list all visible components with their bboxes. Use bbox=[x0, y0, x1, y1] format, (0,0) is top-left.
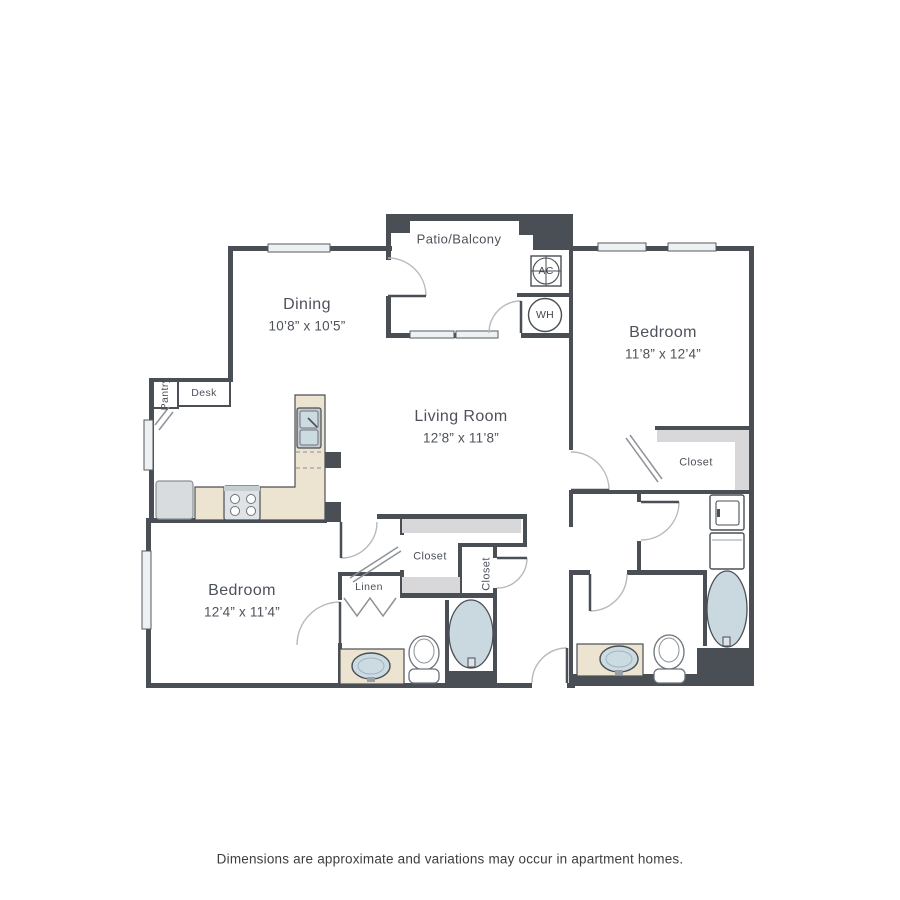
dining-dims: 10’8” x 10’5” bbox=[269, 319, 346, 333]
bath2-toilet bbox=[654, 635, 685, 683]
kitchen-sink bbox=[297, 408, 321, 448]
linen-label: Linen bbox=[355, 582, 383, 593]
living-room-dims: 12’8” x 11’8” bbox=[423, 431, 499, 445]
bedroom1-label: Bedroom bbox=[208, 583, 276, 599]
wh-label: WH bbox=[536, 310, 554, 321]
entry-door-arc bbox=[532, 648, 567, 683]
foyer-closet-label: Closet bbox=[482, 557, 493, 591]
bath1-door-arc bbox=[297, 602, 340, 645]
bedroom1-entry-door-arc bbox=[341, 522, 377, 558]
bath2-vanity bbox=[577, 644, 643, 676]
floor-plan-drawing bbox=[0, 0, 900, 900]
foyer-closet-door-arc bbox=[497, 558, 527, 588]
bedroom2-closet-bifold bbox=[626, 438, 658, 482]
stove bbox=[224, 486, 260, 520]
patio-door-arc bbox=[388, 258, 426, 296]
doors bbox=[155, 258, 679, 683]
desk-label: Desk bbox=[191, 388, 217, 399]
walkin-closet-label: Closet bbox=[413, 552, 447, 563]
wd-closet-door-arc bbox=[641, 502, 679, 540]
wh-closet-door-arc bbox=[489, 301, 521, 333]
washer-dryer bbox=[710, 495, 744, 569]
bath2-door-arc bbox=[590, 574, 627, 611]
disclaimer-text: Dimensions are approximate and variation… bbox=[217, 852, 684, 867]
bedroom2-door-arc bbox=[571, 452, 609, 490]
bedroom1-dims: 12’4” x 11’4” bbox=[204, 605, 280, 619]
refrigerator bbox=[156, 481, 193, 519]
bedroom2-label: Bedroom bbox=[629, 325, 697, 341]
bath1-toilet bbox=[409, 636, 439, 683]
bedroom2-closet-label: Closet bbox=[679, 458, 713, 469]
linen-bifold-doors bbox=[344, 598, 396, 616]
patio-balcony-label: Patio/Balcony bbox=[417, 233, 502, 246]
kitchen bbox=[156, 395, 325, 520]
pantry-label: Pantry bbox=[160, 378, 171, 411]
bath1-bathtub bbox=[449, 600, 493, 668]
dining-label: Dining bbox=[283, 297, 331, 313]
closet-shelves bbox=[402, 430, 749, 593]
bath1-vanity bbox=[340, 649, 404, 684]
living-room-label: Living Room bbox=[414, 409, 507, 425]
ac-label: AC bbox=[538, 266, 553, 277]
bedroom2-dims: 11’8” x 12’4” bbox=[625, 347, 701, 361]
bath2-bathtub bbox=[707, 571, 747, 647]
floor-plan-page: Patio/Balcony Dining 10’8” x 10’5” Livin… bbox=[0, 0, 900, 900]
